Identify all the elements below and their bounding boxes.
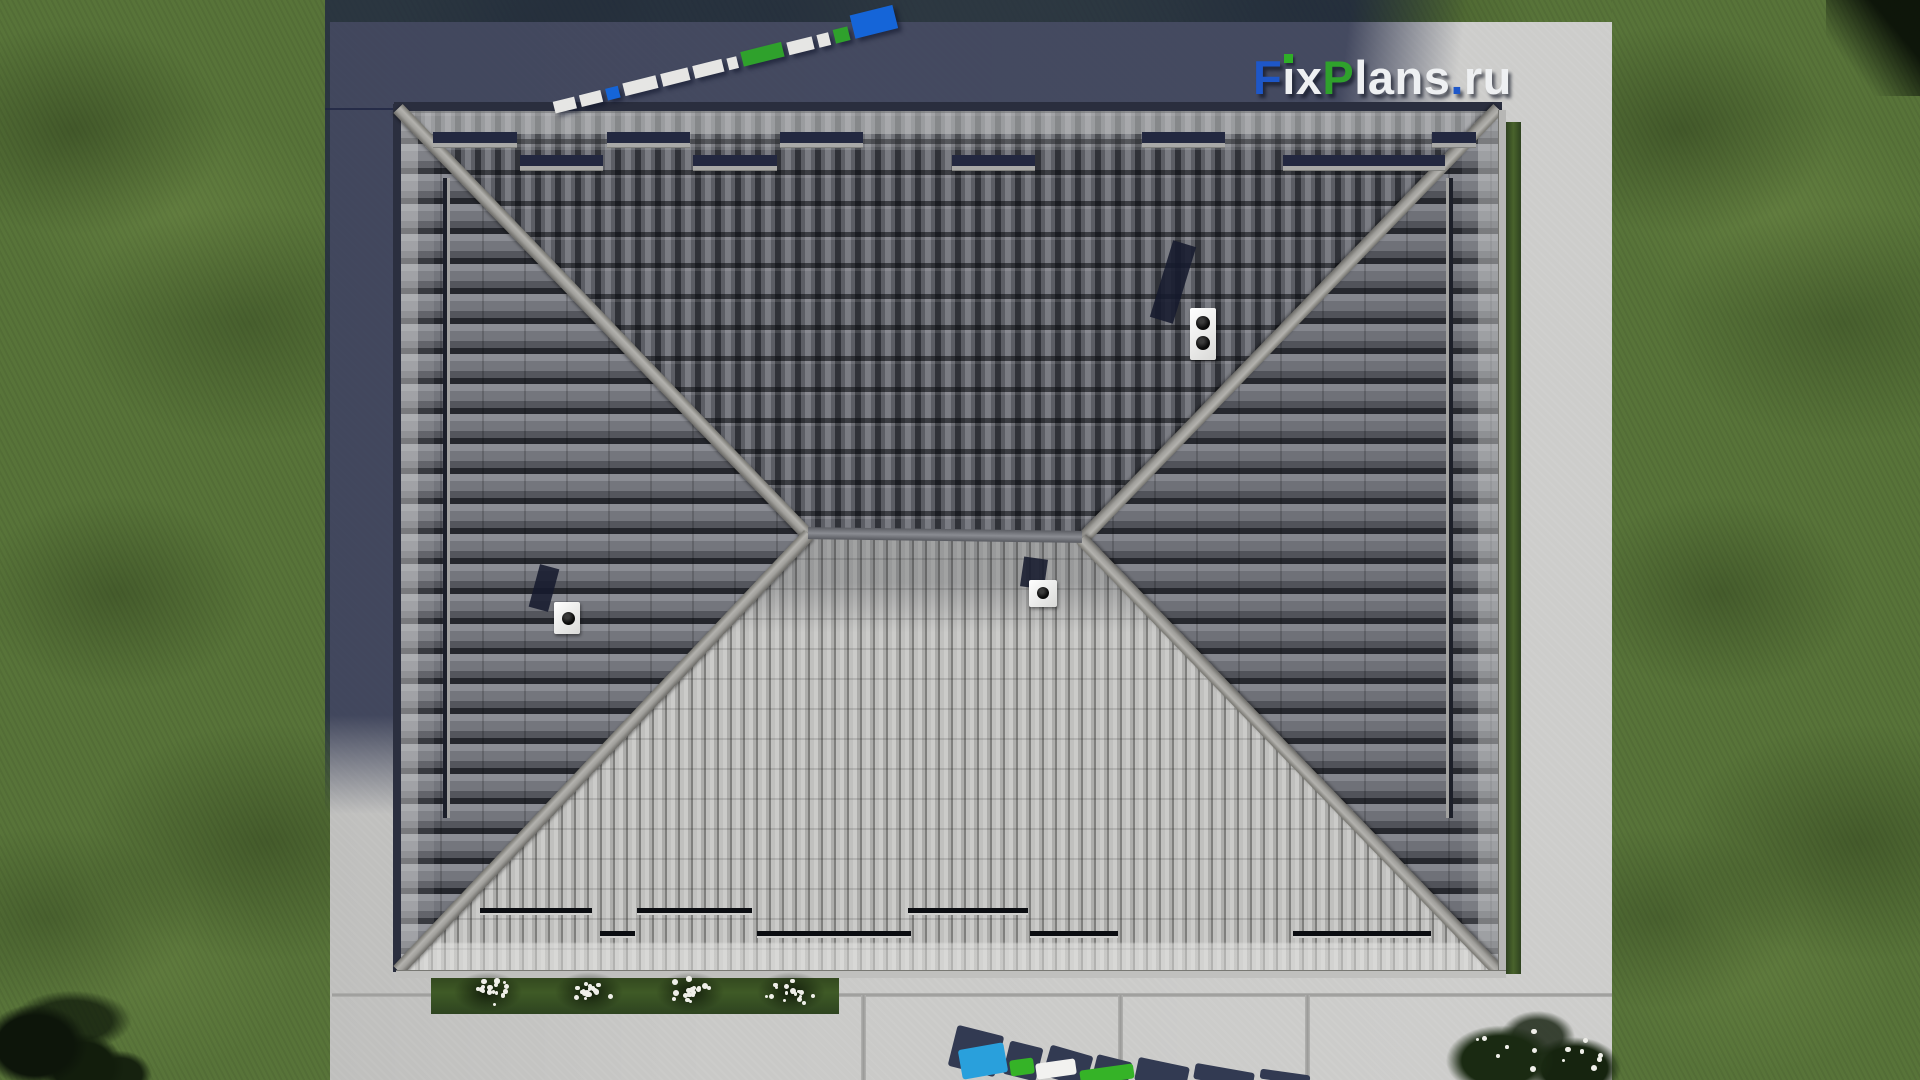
snow-guard-rail-east xyxy=(1445,178,1453,818)
rail-segment xyxy=(1283,155,1445,171)
flower-dot xyxy=(501,993,505,997)
flower-dot xyxy=(574,995,579,1000)
flower-dot xyxy=(584,990,590,996)
flower-dot xyxy=(802,1001,806,1005)
roof-top-view-render: FıxPlans.ru xyxy=(0,0,1920,1080)
house-shadow-left xyxy=(325,108,400,814)
chimney-flue-opening xyxy=(1196,336,1210,350)
logo-letter-p: P xyxy=(1322,51,1354,104)
rail-segment xyxy=(1142,132,1225,148)
flower-dot xyxy=(1597,1057,1602,1062)
rail-segment xyxy=(908,908,1028,915)
vent-flue-opening xyxy=(1037,587,1049,599)
rail-segment xyxy=(1293,931,1431,938)
rail-segment xyxy=(952,155,1035,171)
rail-segment xyxy=(1432,132,1476,148)
flower-dot xyxy=(1583,1038,1588,1043)
flower-dot xyxy=(697,986,701,990)
logo-letter-f: F xyxy=(1253,51,1282,104)
rail-segment xyxy=(780,132,863,148)
flower-dot xyxy=(493,1003,496,1006)
flower-dot xyxy=(1530,1066,1536,1072)
rail-segment xyxy=(600,931,635,938)
flower-dot xyxy=(785,991,789,995)
hedge-strip-right xyxy=(1506,122,1521,974)
flower-dot xyxy=(672,979,678,985)
logo-letter-x: x xyxy=(1296,51,1323,104)
pavement-joint-vertical xyxy=(861,995,866,1080)
flower-dot xyxy=(692,986,696,990)
flower-dot xyxy=(683,993,688,998)
flower-dot xyxy=(575,986,579,990)
chimney-flue-opening xyxy=(1196,316,1210,330)
vent-flue-opening xyxy=(562,612,575,625)
flower-dot xyxy=(1562,1059,1565,1062)
rail-segment xyxy=(757,931,911,938)
flower-dot xyxy=(1580,1049,1585,1054)
flower-dot xyxy=(1476,1038,1479,1041)
flower-dot xyxy=(596,983,601,988)
snow-guard-rail-west xyxy=(443,178,451,818)
flower-dot xyxy=(608,994,613,999)
eave-shadow-left xyxy=(393,104,401,972)
tree-shadow-top-right xyxy=(1826,0,1920,96)
letter-top xyxy=(958,1042,1009,1080)
fixplans-logo: FıxPlans.ru xyxy=(1253,50,1513,106)
logo-letter-i: ı xyxy=(1282,50,1296,105)
flower-dot xyxy=(673,990,679,996)
flower-dot xyxy=(1598,1053,1603,1058)
logo-dot: . xyxy=(1450,51,1464,104)
flower-dot xyxy=(1496,1054,1500,1058)
letter-shadow xyxy=(1134,1057,1190,1080)
rail-segment xyxy=(480,908,592,915)
garden-bed-south xyxy=(431,978,839,1014)
flower-dot xyxy=(1531,1029,1537,1035)
rail-segment xyxy=(693,155,777,171)
roof-fascia-right xyxy=(1498,110,1506,976)
rail-segment xyxy=(607,132,690,148)
flower-dot xyxy=(1591,1065,1597,1071)
flower-dot xyxy=(1565,1047,1570,1052)
rail-segment xyxy=(1030,931,1118,938)
logo-letters-ru: ru xyxy=(1464,51,1512,104)
flower-dot xyxy=(686,988,692,994)
fixplans-3d-watermark-bottom xyxy=(930,1022,1390,1080)
rail-segment xyxy=(637,908,752,915)
letter-top xyxy=(1009,1057,1035,1076)
flower-dot xyxy=(1505,1045,1509,1049)
bush-bottom-right xyxy=(1445,1002,1630,1080)
trees-bottom-left xyxy=(0,972,160,1080)
logo-i-dot-green xyxy=(1284,54,1293,63)
letter-shadow xyxy=(1260,1069,1311,1080)
flower-dot xyxy=(1482,1036,1487,1041)
letter-shadow xyxy=(1193,1063,1255,1080)
flower-dot xyxy=(1532,1048,1537,1053)
flower-dot xyxy=(791,991,794,994)
grass-lawn-left xyxy=(0,0,332,1080)
flower-dot xyxy=(686,976,692,982)
rail-segment xyxy=(433,132,517,148)
scalebar-block xyxy=(726,56,739,70)
rail-segment xyxy=(520,155,603,171)
grass-lawn-right xyxy=(1612,0,1920,1080)
logo-letters-lans: lans xyxy=(1354,51,1450,104)
hip-roof xyxy=(398,108,1498,970)
